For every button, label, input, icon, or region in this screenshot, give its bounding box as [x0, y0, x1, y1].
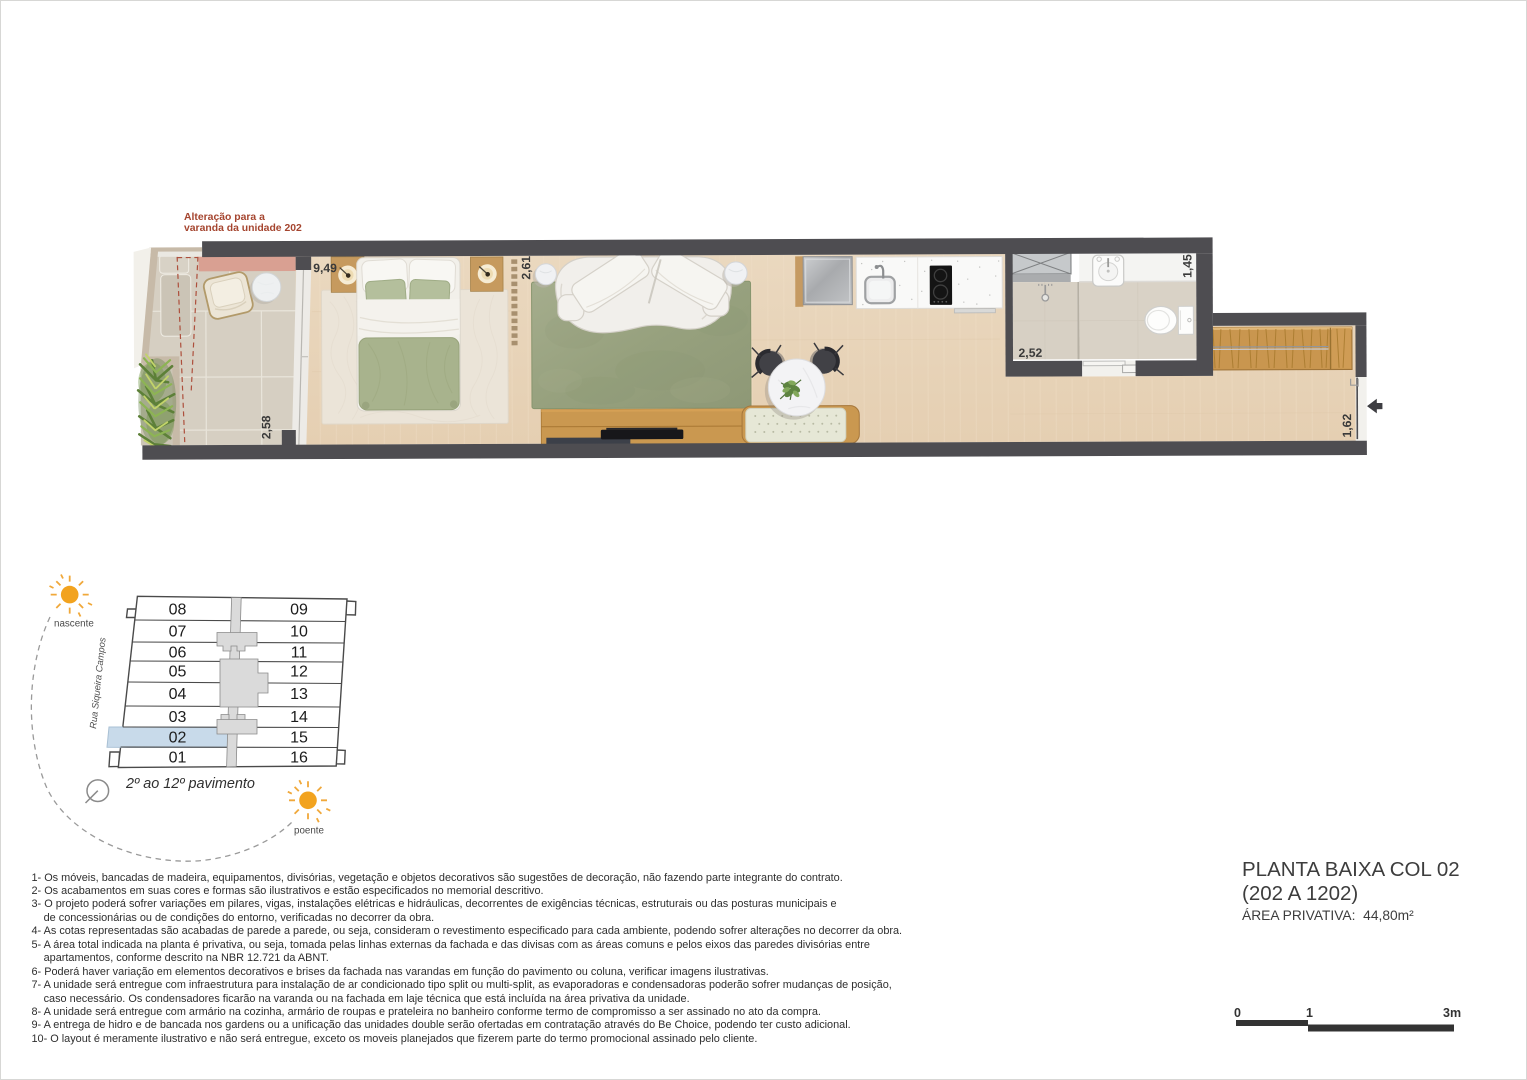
svg-text:03: 03	[169, 709, 187, 726]
svg-text:9,49: 9,49	[313, 261, 337, 275]
svg-text:09: 09	[290, 602, 308, 619]
svg-text:15: 15	[290, 730, 308, 747]
svg-text:08: 08	[169, 602, 187, 619]
svg-text:poente: poente	[294, 826, 325, 837]
svg-text:nascente: nascente	[54, 619, 94, 630]
svg-text:Rua Siqueira Campos: Rua Siqueira Campos	[87, 637, 108, 730]
svg-text:3m: 3m	[1443, 1006, 1461, 1020]
svg-text:10: 10	[290, 624, 308, 641]
svg-text:0: 0	[1234, 1006, 1241, 1020]
svg-text:04: 04	[169, 686, 187, 703]
svg-text:14: 14	[290, 709, 308, 726]
svg-text:11: 11	[291, 645, 308, 662]
svg-text:2,61: 2,61	[519, 256, 533, 280]
svg-text:2,58: 2,58	[259, 415, 273, 439]
svg-text:01: 01	[169, 750, 187, 767]
svg-text:12: 12	[290, 664, 308, 681]
svg-text:2º ao 12º pavimento: 2º ao 12º pavimento	[125, 776, 255, 792]
svg-text:1,45: 1,45	[1180, 254, 1194, 278]
svg-text:1: 1	[1306, 1006, 1313, 1020]
svg-text:1,62: 1,62	[1340, 414, 1354, 438]
svg-text:16: 16	[290, 750, 308, 767]
svg-text:2,52: 2,52	[1018, 346, 1042, 360]
svg-text:02: 02	[169, 730, 187, 747]
svg-text:13: 13	[290, 686, 308, 703]
svg-text:05: 05	[169, 664, 187, 681]
svg-text:07: 07	[169, 624, 187, 641]
svg-text:06: 06	[169, 645, 187, 662]
